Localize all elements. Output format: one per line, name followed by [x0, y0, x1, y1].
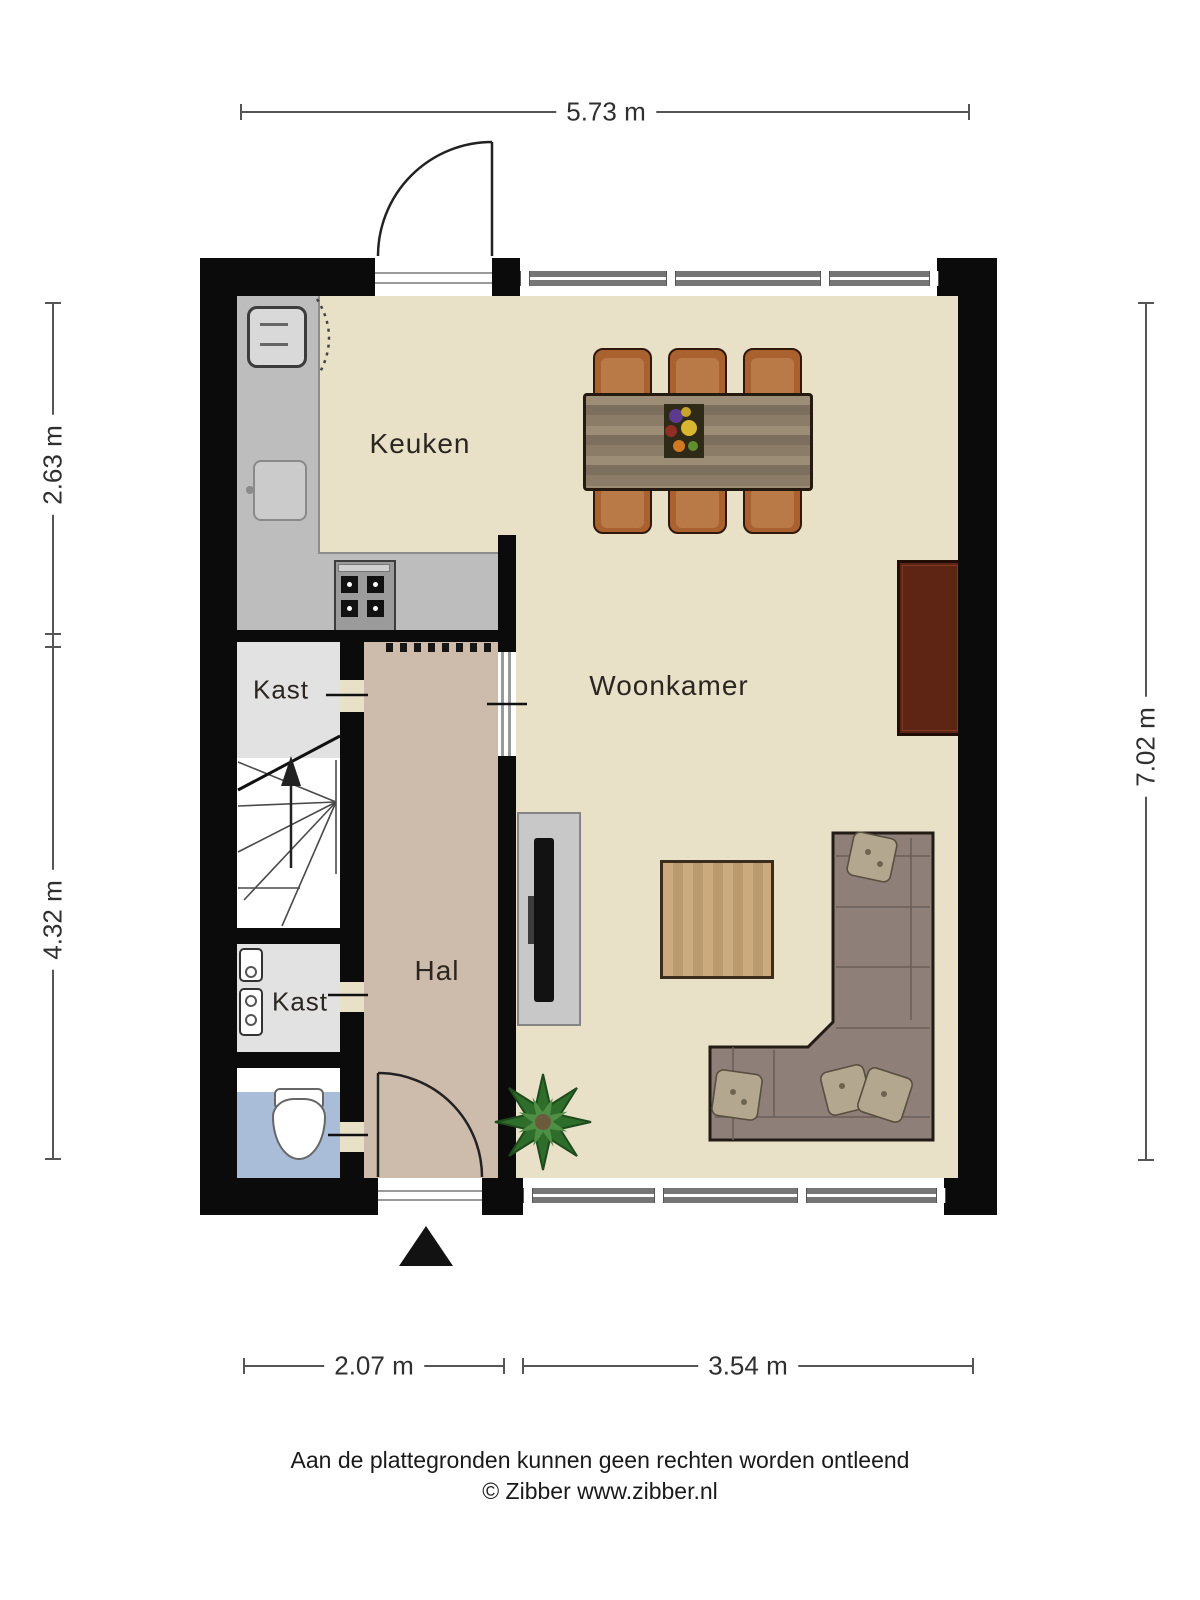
counter-scallop: [317, 299, 329, 374]
sofa: [710, 831, 933, 1140]
frontdoor-swing-icon: [378, 1073, 482, 1177]
backdoor-swing-icon: [378, 142, 492, 256]
floorplan-page: Keuken Woonkamer Hal Kast Kast 5.73 m 2.…: [0, 0, 1200, 1600]
plant-icon: [495, 1074, 591, 1170]
fruit-bowl-icon: [664, 404, 704, 458]
stairs-up-arrow-icon: [281, 756, 301, 868]
linework-overlay: [0, 0, 1200, 1600]
